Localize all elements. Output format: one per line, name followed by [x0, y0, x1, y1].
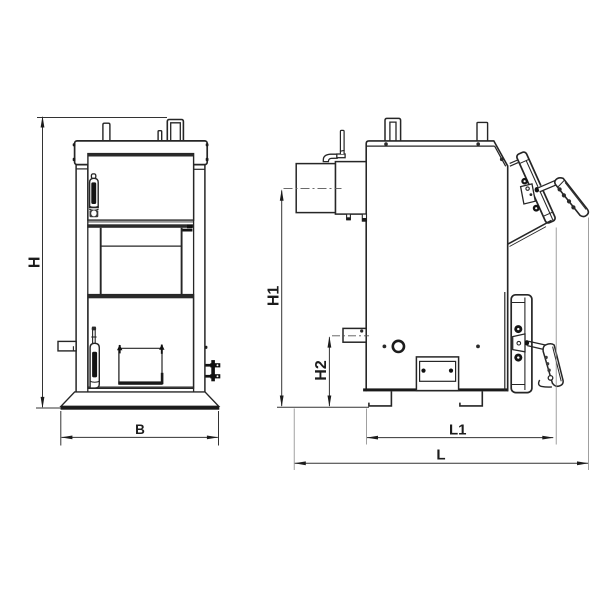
svg-text:L1: L1	[449, 422, 467, 439]
svg-text:H1: H1	[265, 286, 282, 307]
svg-text:H: H	[27, 257, 44, 269]
svg-text:B: B	[135, 422, 145, 437]
svg-text:L: L	[436, 447, 445, 464]
svg-text:H2: H2	[313, 360, 330, 381]
